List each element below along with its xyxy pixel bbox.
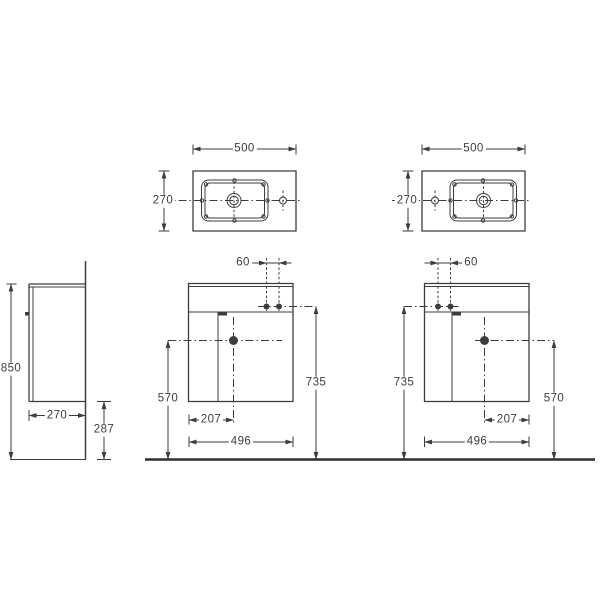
drawing-linework xyxy=(0,0,601,600)
dim-label-plan-left-width: 500 xyxy=(232,143,256,156)
dim-label-side-height: 850 xyxy=(0,363,23,376)
dim-label-plan-left-depth: 270 xyxy=(151,195,175,208)
dim-label-fr-tap-spacing: 60 xyxy=(462,256,480,269)
door-handle xyxy=(453,313,462,316)
plan-view-right xyxy=(392,145,531,232)
door-handle xyxy=(219,313,228,316)
dim-label-fr-tap-height: 735 xyxy=(392,377,416,390)
dim-label-plan-right-depth: 270 xyxy=(395,195,419,208)
dim-label-fr-width: 496 xyxy=(465,436,489,449)
front-elevation-right xyxy=(404,258,554,460)
dim-label-fl-tap-height: 735 xyxy=(304,377,328,390)
dim-label-plan-right-width: 500 xyxy=(461,143,485,156)
front-elevation-left xyxy=(168,258,316,460)
dim-label-fl-width: 496 xyxy=(229,436,253,449)
dim-label-fl-drain-height: 570 xyxy=(156,393,180,406)
dim-label-fl-drain-offset: 207 xyxy=(199,414,223,427)
cabinet-outline xyxy=(189,284,294,402)
dim-label-fr-drain-height: 570 xyxy=(542,393,566,406)
dim-label-fr-drain-offset: 207 xyxy=(495,414,519,427)
dim-label-side-depth: 270 xyxy=(45,409,69,422)
dim-label-side-clearance: 287 xyxy=(92,424,116,437)
plan-view-left xyxy=(159,145,303,232)
technical-drawing-canvas: 500 270 500 270 850 270 287 60 735 570 2… xyxy=(0,0,601,600)
cabinet-outline xyxy=(425,284,530,402)
dim-label-fl-tap-spacing: 60 xyxy=(234,256,252,269)
door-handle xyxy=(25,312,30,316)
